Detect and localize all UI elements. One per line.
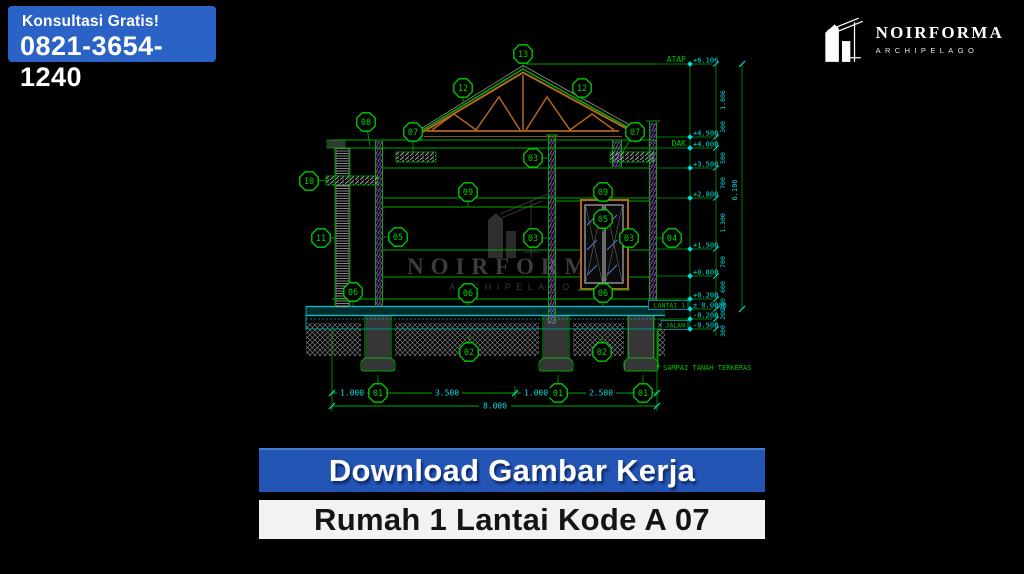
section-marker-label: 08 — [361, 118, 371, 128]
level-value: +2.800 — [693, 191, 718, 199]
section-marker-label: 12 — [577, 84, 587, 94]
product-title-label: Rumah 1 Lantai Kode A 07 — [314, 502, 710, 538]
level-name: DAK — [672, 139, 687, 148]
section-marker-label: 06 — [463, 289, 473, 299]
section-marker-label: 10 — [304, 177, 314, 187]
section-marker-label: 02 — [597, 348, 607, 358]
level-value: +0.200 — [693, 292, 718, 300]
horizontal-dim: 2.500 — [589, 389, 613, 398]
level-value: +6.106 — [693, 57, 718, 65]
section-marker-label: 09 — [463, 188, 473, 198]
level-value: +0.800 — [693, 269, 718, 277]
section-marker-label: 13 — [518, 50, 528, 60]
section-marker-label: 01 — [373, 389, 383, 399]
vertical-dim: 700 — [719, 177, 727, 189]
product-title-banner: Rumah 1 Lantai Kode A 07 — [259, 500, 765, 539]
vertical-dim: 600 — [719, 281, 727, 293]
level-marker — [687, 134, 693, 140]
section-marker-label: 12 — [458, 84, 468, 94]
level-value: +1.500 — [693, 242, 718, 250]
horizontal-dim: 1.000 — [524, 389, 548, 398]
level-name: LANTAI 1 — [654, 302, 685, 310]
download-banner-label: Download Gambar Kerja — [329, 453, 695, 489]
vertical-dim: 1.300 — [719, 213, 727, 233]
section-marker-label: 07 — [630, 128, 640, 138]
level-value: -0.500 — [693, 322, 718, 330]
vertical-dim: 300 — [719, 325, 727, 337]
section-marker-label: 02 — [464, 348, 474, 358]
download-banner[interactable]: Download Gambar Kerja — [259, 448, 765, 492]
eave-gutters — [417, 127, 641, 141]
section-marker-label: 01 — [553, 389, 563, 399]
horizontal-dim: 3.500 — [435, 389, 459, 398]
roof-truss — [416, 66, 641, 142]
section-marker-label: 09 — [598, 188, 608, 198]
section-marker-label: 04 — [667, 234, 677, 244]
section-marker-label: 11 — [316, 234, 326, 244]
level-marker — [687, 165, 693, 171]
section-marker-label: 05 — [393, 233, 403, 243]
section-marker-label: 06 — [348, 288, 358, 298]
vertical-dim: 1.806 — [719, 90, 727, 110]
promo-image: Konsultasi Gratis! 0821-3654-1240 NOIRFO… — [0, 0, 1024, 574]
level-value: +3.500 — [693, 161, 718, 169]
level-value: -0.200 — [693, 312, 718, 320]
vertical-dim: 500 — [719, 152, 727, 164]
total-width-dim: 8.000 — [483, 402, 507, 411]
section-marker-label: 03 — [624, 234, 634, 244]
left-wall-column — [326, 140, 378, 307]
section-marker-label: 05 — [598, 215, 608, 225]
section-marker-label: 03 — [528, 154, 538, 164]
section-marker-label: 07 — [408, 128, 418, 138]
overall-height-dim: 6.106 — [731, 179, 739, 200]
level-marker — [687, 246, 693, 252]
level-marker — [687, 195, 693, 201]
vertical-dim: 200 — [719, 308, 727, 320]
vertical-dim: 200 — [719, 298, 727, 310]
level-marker — [687, 61, 693, 67]
level-value: +4.000 — [693, 141, 718, 149]
vertical-dim: 700 — [719, 256, 727, 268]
level-value: +4.500 — [693, 130, 718, 138]
section-marker-label: 06 — [598, 289, 608, 299]
section-marker-label: 03 — [528, 234, 538, 244]
level-marker — [687, 273, 693, 279]
vertical-dim: 300 — [719, 121, 727, 133]
level-name: JALAN — [665, 322, 685, 330]
section-marker-label: 01 — [638, 389, 648, 399]
horizontal-dim: 1.000 — [340, 389, 364, 398]
ground-note: SAMPAI TANAH TERKERAS — [663, 364, 752, 372]
level-name: ATAP — [667, 55, 686, 64]
level-marker — [687, 145, 693, 151]
